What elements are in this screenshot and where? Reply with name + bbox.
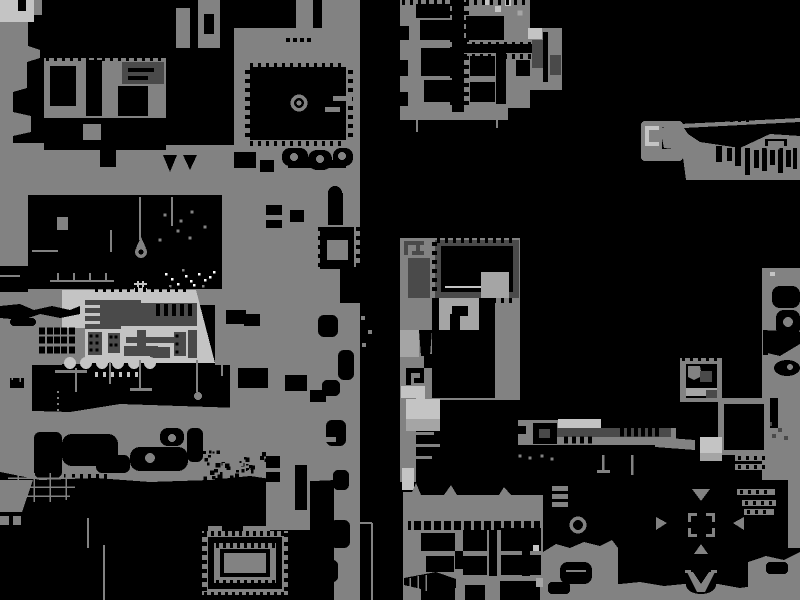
- map-shape: [10, 318, 36, 326]
- map-shape: [135, 372, 138, 377]
- map-shape: [520, 287, 525, 291]
- map-shape: [496, 42, 499, 47]
- map-shape: [402, 0, 405, 5]
- map-shape: [96, 455, 130, 473]
- map-shape: [306, 141, 309, 146]
- map-shape: [95, 287, 98, 292]
- map-shape: [282, 141, 285, 146]
- map-shape: [421, 48, 455, 76]
- map-shape: [183, 287, 186, 292]
- map-shape: [245, 97, 250, 101]
- map-shape: [307, 38, 311, 42]
- map-shape: [400, 330, 419, 357]
- map-shape: [150, 56, 153, 61]
- map-shape: [451, 520, 454, 531]
- map-shape: [464, 101, 469, 105]
- map-shape: [61, 337, 67, 344]
- bracket-landmark: [645, 142, 659, 146]
- map-shape: [788, 460, 800, 548]
- map-shape: [295, 465, 307, 510]
- map-shape: [318, 236, 323, 240]
- map-shape: [180, 304, 184, 316]
- map-shape: [520, 242, 525, 246]
- map-shape: [488, 54, 491, 59]
- map-shape: [491, 520, 494, 531]
- map-shape: [706, 117, 709, 122]
- 46: [251, 465, 255, 469]
- map-shape: [78, 56, 81, 61]
- map-shape: [519, 455, 522, 458]
- map-shape: [54, 328, 60, 335]
- map-shape: [408, 258, 430, 298]
- map-shape: [700, 437, 722, 453]
- map-shape: [533, 545, 539, 551]
- map-shape: [142, 56, 145, 61]
- map-shape: [450, 47, 455, 51]
- map-shape: [601, 420, 676, 428]
- map-shape: [260, 531, 263, 536]
- map-shape: [57, 391, 59, 393]
- map-shape: [64, 357, 76, 369]
- map-shape: [118, 56, 121, 61]
- map-shape: [348, 133, 353, 137]
- map-shape: [250, 63, 253, 68]
- map-shape: [230, 580, 233, 585]
- map-shape: [127, 372, 130, 377]
- map-shape: [450, 92, 455, 96]
- map-shape: [318, 263, 323, 267]
- map-shape: [103, 287, 106, 292]
- map-shape: [432, 278, 437, 282]
- map-shape: [461, 238, 464, 243]
- map-shape: [216, 543, 219, 548]
- map-shape: [266, 456, 280, 468]
- map-shape: [274, 592, 277, 597]
- map-shape: [324, 560, 338, 582]
- map-shape: [164, 304, 168, 316]
- map-shape: [450, 314, 460, 334]
- map-shape: [356, 236, 361, 240]
- map-shape: [300, 38, 304, 42]
- 46: [212, 476, 215, 479]
- map-shape: [245, 70, 250, 74]
- map-shape: [508, 108, 532, 120]
- map-shape: [204, 592, 207, 597]
- map-shape: [230, 543, 233, 548]
- map-shape: [96, 474, 99, 479]
- map-shape: [420, 368, 424, 378]
- map-shape: [145, 453, 155, 463]
- map-shape: [47, 337, 53, 344]
- 46: [225, 463, 230, 468]
- map-shape: [110, 344, 113, 347]
- map-shape: [130, 388, 152, 391]
- map-shape: [690, 356, 693, 361]
- map-shape: [54, 337, 60, 344]
- map-shape: [471, 520, 474, 531]
- map-shape: [115, 344, 118, 347]
- map-shape: [528, 54, 531, 59]
- 46: [203, 451, 206, 454]
- map-shape: [218, 592, 221, 597]
- 46: [262, 452, 266, 456]
- map-shape: [738, 456, 741, 460]
- map-shape: [338, 350, 354, 380]
- map-shape: [716, 146, 722, 162]
- map-shape: [455, 551, 463, 569]
- map-shape: [266, 141, 269, 146]
- map-shape: [432, 251, 437, 255]
- map-shape: [314, 63, 317, 68]
- map-shape: [176, 351, 179, 354]
- map-shape: [105, 273, 107, 281]
- map-shape: [202, 560, 207, 564]
- map-shape: [463, 556, 487, 575]
- map-shape: [306, 63, 309, 68]
- map-shape: [218, 531, 221, 536]
- compass-bracket: [712, 513, 715, 522]
- map-shape: [340, 267, 360, 303]
- map-shape: [90, 342, 93, 345]
- map-shape: [778, 148, 783, 173]
- map-shape: [763, 351, 768, 355]
- map-shape: [47, 328, 53, 335]
- map-shape: [496, 54, 499, 59]
- map-shape: [253, 531, 256, 536]
- map-shape: [472, 42, 475, 47]
- map-shape: [96, 349, 99, 352]
- map-shape: [348, 70, 353, 74]
- map-shape: [176, 335, 179, 338]
- map-shape: [246, 592, 249, 597]
- map-shape: [772, 286, 800, 308]
- map-shape: [100, 143, 116, 167]
- map-shape: [348, 124, 353, 128]
- map-shape: [754, 465, 757, 469]
- map-shape: [238, 368, 268, 388]
- map-shape: [284, 560, 289, 564]
- map-shape: [450, 29, 455, 33]
- map-shape: [96, 342, 99, 345]
- compass-bracket: [688, 528, 691, 537]
- map-shape: [46, 56, 49, 61]
- map-shape: [738, 117, 741, 122]
- map-shape: [724, 404, 764, 450]
- map-shape: [573, 520, 583, 530]
- white-specks: [213, 271, 216, 274]
- map-shape: [529, 457, 532, 460]
- map-shape: [464, 47, 469, 51]
- map-shape: [80, 474, 83, 479]
- map-shape: [348, 115, 353, 119]
- map-shape: [90, 349, 93, 352]
- map-shape: [232, 531, 235, 536]
- white-specks: [185, 275, 188, 278]
- map-shape: [509, 238, 512, 243]
- map-shape: [421, 533, 455, 551]
- game-map-canvas[interactable]: [0, 0, 800, 600]
- map-shape: [176, 8, 190, 48]
- map-shape: [130, 447, 188, 471]
- map-shape: [325, 107, 340, 112]
- map-shape: [134, 56, 137, 61]
- map-shape: [763, 333, 768, 337]
- map-shape: [552, 486, 568, 491]
- map-shape: [420, 20, 453, 40]
- map-shape: [774, 360, 800, 376]
- map-shape: [552, 494, 568, 499]
- map-shape: [258, 580, 261, 585]
- map-shape: [111, 372, 114, 377]
- map-shape: [226, 310, 246, 324]
- game-map-screen[interactable]: [0, 0, 800, 600]
- map-shape: [766, 562, 788, 574]
- map-shape: [282, 63, 285, 68]
- map-shape: [482, 0, 485, 5]
- map-shape: [298, 63, 301, 68]
- map-shape: [464, 42, 467, 47]
- map-shape: [316, 155, 324, 163]
- map-shape: [237, 543, 240, 548]
- map-shape: [286, 427, 316, 433]
- map-shape: [202, 533, 207, 537]
- map-shape: [39, 328, 45, 335]
- 12: [208, 476, 210, 478]
- map-shape: [202, 285, 205, 288]
- map-shape: [748, 490, 751, 494]
- map-shape: [245, 133, 250, 137]
- map-shape: [139, 250, 144, 255]
- map-shape: [518, 426, 526, 434]
- 12: [218, 455, 221, 458]
- map-shape: [784, 436, 788, 440]
- map-shape: [793, 148, 797, 169]
- map-shape: [500, 581, 540, 600]
- map-shape: [464, 20, 469, 24]
- map-shape: [464, 38, 469, 42]
- map-shape: [580, 437, 584, 444]
- hash-marker: [134, 283, 147, 285]
- 46: [220, 472, 223, 475]
- map-shape: [520, 251, 525, 255]
- map-shape: [431, 520, 434, 531]
- white-specks: [190, 280, 193, 283]
- map-shape: [432, 287, 437, 291]
- white-specks: [198, 273, 201, 276]
- map-shape: [322, 141, 325, 146]
- map-shape: [762, 148, 767, 171]
- map-shape: [472, 54, 475, 59]
- map-shape: [50, 66, 76, 106]
- map-shape: [286, 38, 290, 42]
- 46: [239, 461, 241, 463]
- white-specks: [209, 276, 212, 279]
- 46: [210, 471, 214, 475]
- map-shape: [172, 304, 176, 316]
- map-shape: [445, 238, 448, 243]
- map-shape: [450, 101, 455, 105]
- map-shape: [402, 468, 414, 490]
- map-shape: [461, 520, 464, 531]
- map-shape: [216, 580, 219, 585]
- map-shape: [314, 141, 317, 146]
- map-shape: [128, 76, 148, 80]
- map-shape: [450, 74, 455, 78]
- map-shape: [730, 117, 733, 122]
- map-shape: [90, 335, 93, 338]
- map-shape: [770, 272, 775, 276]
- map-shape: [290, 63, 293, 68]
- map-shape: [57, 217, 68, 230]
- map-shape: [204, 226, 207, 229]
- map-shape: [88, 474, 91, 479]
- map-shape: [627, 428, 631, 437]
- map-shape: [338, 152, 346, 160]
- 46: [216, 450, 219, 453]
- map-shape: [416, 456, 432, 459]
- map-shape: [202, 569, 207, 573]
- map-shape: [509, 298, 512, 303]
- map-shape: [327, 240, 348, 260]
- map-shape: [493, 238, 496, 243]
- map-shape: [756, 490, 759, 494]
- map-shape: [122, 62, 164, 84]
- map-shape: [61, 328, 67, 335]
- map-shape: [112, 357, 124, 369]
- map-shape: [411, 520, 414, 531]
- map-shape: [180, 220, 183, 223]
- map-shape: [318, 245, 323, 249]
- map-shape: [504, 42, 507, 47]
- map-shape: [764, 490, 767, 494]
- map-shape: [70, 56, 73, 61]
- map-shape: [296, 433, 306, 443]
- 46: [236, 470, 239, 473]
- map-shape: [552, 502, 568, 507]
- 46: [208, 455, 211, 458]
- map-shape: [245, 115, 250, 119]
- map-shape: [318, 254, 323, 258]
- map-shape: [458, 0, 461, 5]
- map-shape: [128, 357, 140, 369]
- map-shape: [245, 79, 250, 83]
- map-shape: [244, 580, 247, 585]
- map-shape: [290, 210, 304, 222]
- map-shape: [176, 343, 179, 346]
- map-shape: [47, 347, 53, 354]
- map-shape: [548, 582, 570, 594]
- map-shape: [620, 428, 624, 437]
- map-shape: [464, 29, 469, 33]
- map-shape: [104, 474, 107, 479]
- map-shape: [158, 56, 161, 61]
- map-shape: [746, 456, 749, 460]
- map-shape: [424, 354, 432, 368]
- map-shape: [333, 470, 349, 490]
- map-shape: [767, 147, 770, 150]
- map-shape: [96, 335, 99, 338]
- map-shape: [474, 0, 477, 5]
- 46: [203, 477, 207, 481]
- map-shape: [746, 465, 749, 469]
- map-shape: [244, 314, 260, 326]
- map-shape: [539, 429, 550, 438]
- map-shape: [714, 117, 717, 122]
- map-shape: [265, 580, 268, 585]
- map-shape: [790, 474, 800, 478]
- map-shape: [406, 399, 440, 419]
- map-shape: [597, 470, 610, 473]
- map-shape: [469, 238, 472, 243]
- white-specks: [177, 283, 180, 286]
- map-shape: [244, 543, 247, 548]
- map-shape: [453, 238, 456, 243]
- map-shape: [127, 287, 130, 292]
- map-shape: [786, 150, 791, 167]
- map-shape: [418, 0, 421, 5]
- map-shape: [790, 490, 800, 494]
- map-shape: [266, 220, 282, 228]
- map-shape: [245, 88, 250, 92]
- map-shape: [234, 152, 256, 168]
- map-shape: [560, 562, 592, 584]
- map-shape: [211, 592, 214, 597]
- map-shape: [541, 455, 544, 458]
- map-shape: [258, 543, 261, 548]
- map-shape: [237, 580, 240, 585]
- v-marker: [685, 570, 691, 573]
- map-shape: [740, 490, 743, 494]
- map-shape: [260, 592, 263, 597]
- 46: [217, 474, 222, 479]
- map-shape: [239, 531, 242, 536]
- map-shape: [738, 465, 741, 469]
- map-shape: [251, 580, 254, 585]
- map-shape: [477, 238, 480, 243]
- map-shape: [202, 542, 207, 546]
- map-shape: [432, 269, 437, 273]
- map-shape: [202, 587, 207, 591]
- map-shape: [267, 592, 270, 597]
- map-shape: [504, 54, 507, 59]
- map-shape: [520, 278, 525, 282]
- map-shape: [520, 42, 523, 47]
- map-shape: [442, 0, 445, 5]
- map-shape: [761, 501, 764, 505]
- map-shape: [348, 79, 353, 83]
- map-shape: [432, 260, 437, 264]
- map-shape: [103, 372, 106, 377]
- map-shape: [164, 214, 167, 217]
- map-shape: [421, 520, 424, 531]
- map-shape: [223, 580, 226, 585]
- map-shape: [150, 347, 170, 358]
- map-shape: [0, 516, 9, 525]
- map-shape: [110, 56, 113, 61]
- map-shape: [406, 419, 440, 431]
- map-shape: [518, 11, 523, 16]
- map-shape: [520, 54, 523, 59]
- map-shape: [634, 428, 638, 437]
- map-shape: [485, 238, 488, 243]
- map-shape: [464, 65, 469, 69]
- map-shape: [655, 428, 659, 437]
- map-shape: [450, 65, 455, 69]
- map-shape: [769, 501, 772, 505]
- map-shape: [641, 428, 645, 437]
- map-shape: [110, 336, 113, 339]
- map-shape: [211, 531, 214, 536]
